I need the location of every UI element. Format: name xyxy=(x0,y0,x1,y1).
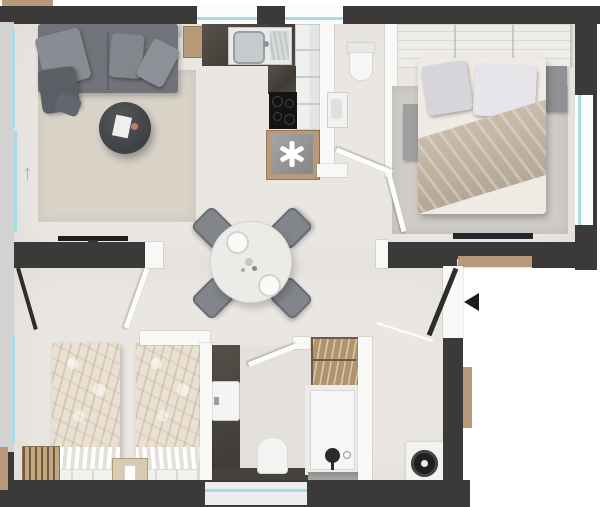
doorjamb-bedroom xyxy=(376,240,388,268)
washer-drum-center xyxy=(421,460,428,467)
fridge-freezer xyxy=(271,134,313,174)
bathroom-basin xyxy=(211,381,240,421)
bed-pillow xyxy=(420,60,473,117)
sink-drainboard xyxy=(270,31,289,60)
sheet-folds xyxy=(52,447,120,469)
burner xyxy=(285,99,294,108)
sink-faucet xyxy=(263,41,269,47)
basin-bowl xyxy=(331,99,342,119)
sink-bowl xyxy=(233,31,265,64)
window-top-wc xyxy=(285,6,343,24)
doorjamb xyxy=(145,242,163,268)
kitchen-counter-column xyxy=(268,66,296,94)
bathroom-toilet xyxy=(257,437,288,474)
table-centerpiece xyxy=(252,266,257,271)
window-top-kitchen xyxy=(197,6,257,24)
window-glass xyxy=(205,489,307,492)
table-centerpiece xyxy=(241,268,245,272)
window-left-living-2 xyxy=(14,131,17,232)
window-bottom-bathroom xyxy=(205,482,307,505)
burner xyxy=(284,114,295,125)
cooktop xyxy=(269,92,297,129)
sink-unit xyxy=(228,27,292,65)
wall-entry-right-top xyxy=(532,256,577,268)
wall-living-bedroom2 xyxy=(12,242,145,268)
nightstand-card xyxy=(124,465,136,481)
shower xyxy=(305,385,360,475)
wc-wall-jamb xyxy=(317,164,347,177)
tv-bedroom xyxy=(453,233,533,239)
nightstand-right xyxy=(545,66,567,112)
planter-top xyxy=(2,0,53,6)
plate xyxy=(226,231,249,254)
floral-duvet xyxy=(52,343,120,447)
floor-plan: ↑ xyxy=(0,0,600,507)
shelf-divider xyxy=(313,359,356,361)
entrance-arrow-icon xyxy=(464,293,479,311)
burner xyxy=(273,112,282,121)
coffee-table-bowl xyxy=(131,123,138,130)
window-glass xyxy=(285,17,343,20)
plate xyxy=(258,274,281,297)
shower-fixture-stem xyxy=(331,461,334,470)
wc-washbasin xyxy=(327,92,348,128)
window-glass xyxy=(578,95,581,225)
basin-faucet xyxy=(214,397,219,405)
window-left-living-1 xyxy=(12,30,15,127)
wc-toilet xyxy=(349,52,373,81)
radiator xyxy=(22,446,60,482)
window-right-bedroom xyxy=(575,95,593,225)
planter-left xyxy=(0,447,8,490)
towel-shelf xyxy=(311,337,362,387)
window-glass xyxy=(197,17,257,20)
nightstand-left xyxy=(403,104,418,160)
wall-bedroom-bottom-thick xyxy=(387,242,457,268)
wall-bedroom2-right xyxy=(200,343,212,490)
fridge-snowflake-icon xyxy=(279,141,305,167)
table-centerpiece xyxy=(245,258,253,266)
wall-bathroom-right xyxy=(358,337,372,483)
entrance-threshold xyxy=(458,256,532,267)
window-left-bedroom2 xyxy=(12,336,15,443)
right-ledge xyxy=(463,367,472,428)
double-bed xyxy=(418,58,546,214)
north-arrow-icon: ↑ xyxy=(22,160,33,186)
shower-handle xyxy=(343,451,351,459)
floral-duvet xyxy=(136,343,203,447)
twin-bed-left xyxy=(52,343,120,488)
burner xyxy=(272,96,283,107)
